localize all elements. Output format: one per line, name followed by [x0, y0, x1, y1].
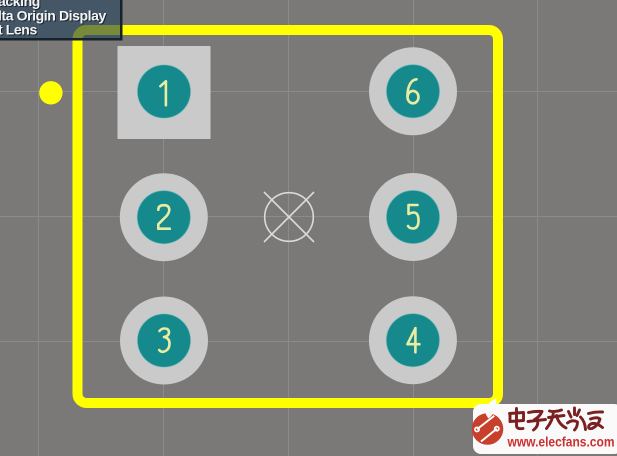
svg-text:t Lens: t Lens [0, 22, 37, 38]
svg-text:www.elecfans.com: www.elecfans.com [507, 435, 615, 450]
